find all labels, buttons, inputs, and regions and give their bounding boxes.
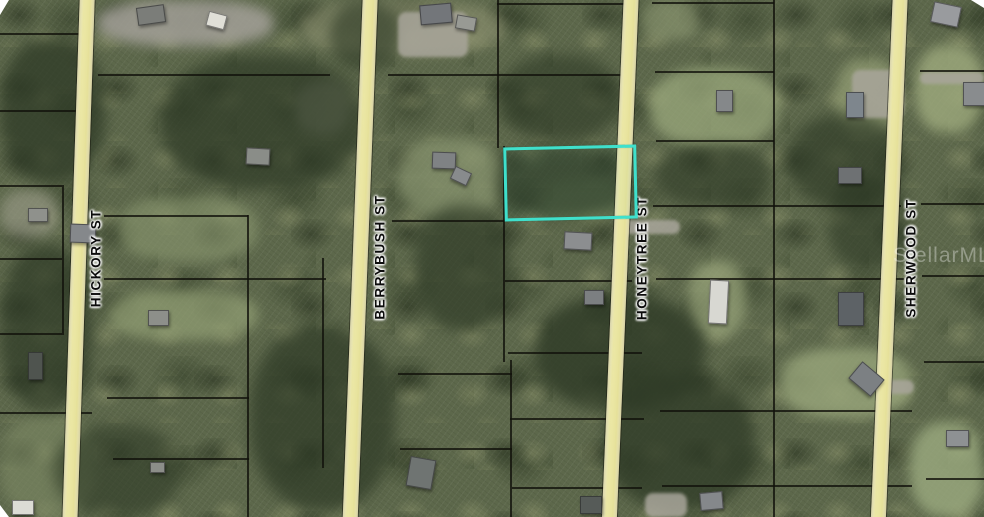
map-viewport[interactable]: HICKORY STBERRYBUSH STHONEYTREE STSHERWO… (0, 0, 984, 517)
building-footprint (148, 310, 169, 326)
building-footprint (699, 491, 723, 511)
parcel-boundary-line (113, 458, 249, 460)
parcel-boundary-line (660, 410, 912, 412)
building-footprint (28, 352, 43, 380)
parcel-boundary-line (922, 275, 984, 277)
clearing-patch (108, 290, 258, 340)
parcel-boundary-line (392, 220, 504, 222)
parcel-boundary-line (926, 478, 984, 480)
parcel-boundary-line (0, 258, 62, 260)
tree-canopy-patch (655, 145, 770, 207)
building-footprint (846, 92, 864, 118)
parcel-boundary-line (62, 185, 64, 335)
parcel-boundary-line (497, 3, 633, 5)
parcel-boundary-line (400, 448, 512, 450)
tree-canopy-patch (500, 55, 620, 140)
parcel-boundary-line (773, 0, 775, 517)
building-footprint (838, 167, 862, 184)
building-footprint (136, 4, 166, 26)
mls-watermark: StellarMLS (893, 244, 984, 268)
tree-canopy-patch (415, 205, 510, 330)
building-footprint (930, 1, 962, 27)
parcel-boundary-line (497, 0, 499, 148)
building-footprint (963, 82, 984, 106)
parcel-boundary-line (655, 71, 774, 73)
parcel-boundary-line (924, 361, 984, 363)
parcel-boundary-line (920, 70, 984, 72)
parcel-boundary-line (247, 215, 249, 517)
clearing-patch (118, 196, 258, 262)
building-footprint (838, 292, 864, 326)
building-footprint (246, 147, 271, 165)
parcel-boundary-line (652, 2, 774, 4)
building-footprint (406, 456, 437, 490)
parcel-boundary-line (510, 360, 512, 517)
parcel-boundary-line (921, 203, 984, 205)
parcel-boundary-line (512, 487, 642, 489)
parcel-boundary-line (104, 215, 248, 217)
building-footprint (564, 231, 593, 250)
parcel-boundary-line (104, 278, 326, 280)
street-label: HICKORY ST (89, 209, 104, 308)
parcel-boundary-line (107, 397, 249, 399)
building-footprint (432, 152, 457, 170)
parcel-boundary-line (0, 185, 62, 187)
building-footprint (28, 208, 48, 222)
driveway-patch (645, 493, 687, 517)
tree-canopy-patch (605, 375, 755, 510)
parcel-boundary-line (388, 74, 631, 76)
parcel-boundary-line (653, 205, 901, 207)
building-footprint (584, 290, 604, 305)
parcel-boundary-line (0, 33, 86, 35)
parcel-boundary-line (322, 258, 324, 468)
parcel-boundary-line (398, 373, 512, 375)
building-footprint (419, 3, 453, 26)
parcel-boundary-line (656, 140, 774, 142)
highlighted-parcel-outline (503, 145, 638, 222)
street-label: BERRYBUSH ST (373, 194, 388, 319)
aerial-map-canvas: HICKORY STBERRYBUSH STHONEYTREE STSHERWO… (0, 0, 984, 517)
clearing-patch (650, 68, 778, 146)
building-footprint (12, 500, 34, 515)
building-footprint (580, 496, 602, 514)
clearing-patch (98, 0, 273, 46)
building-footprint (716, 90, 733, 112)
parcel-boundary-line (510, 418, 644, 420)
clearing-patch (640, 0, 700, 40)
parcel-boundary-line (98, 74, 330, 76)
parcel-boundary-line (656, 278, 904, 280)
parcel-boundary-line (0, 333, 62, 335)
building-footprint (946, 430, 969, 447)
building-footprint (150, 462, 165, 473)
building-footprint (708, 280, 729, 325)
